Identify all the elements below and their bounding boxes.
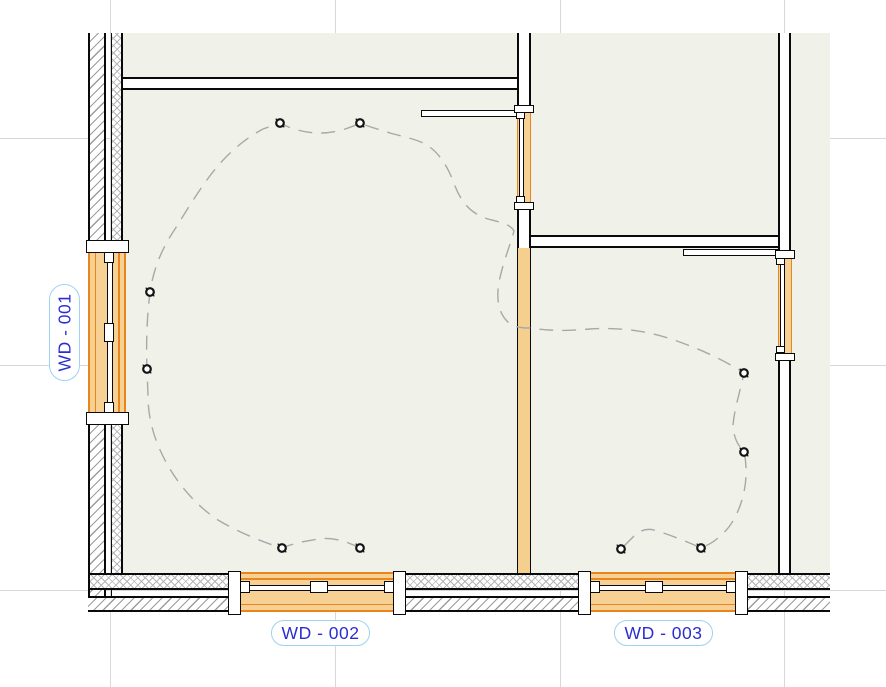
middle-right-partition-wall[interactable] <box>531 235 778 248</box>
window-mullion <box>240 581 250 593</box>
window-glazing <box>780 259 785 353</box>
window-wd-002[interactable] <box>228 571 406 615</box>
window-frame <box>735 571 748 615</box>
window-tag-label: WD - 002 <box>282 623 360 644</box>
window-mullion <box>104 252 114 263</box>
window-tag-wd-001[interactable]: WD - 001 <box>49 284 80 381</box>
window-frame <box>393 571 406 615</box>
window-middle-wall[interactable] <box>514 105 534 210</box>
opening-projection-bar-right <box>683 249 778 256</box>
window-mullion <box>776 258 785 265</box>
window-tag-wd-003[interactable]: WD - 003 <box>614 620 713 646</box>
window-tag-label: WD - 001 <box>54 294 75 372</box>
window-inner-line <box>591 578 735 580</box>
window-inner-line <box>95 253 97 412</box>
window-frame <box>514 202 534 210</box>
window-inner-line <box>118 253 120 412</box>
window-tag-label: WD - 003 <box>625 623 703 644</box>
floor-plan-canvas: WD - 001 WD - 002 WD - 003 <box>0 0 886 687</box>
window-frame <box>775 353 795 362</box>
window-mullion <box>384 581 394 593</box>
opening-projection-bar-top <box>421 110 518 117</box>
window-mullion <box>310 581 328 593</box>
window-glazing <box>591 585 735 591</box>
window-body <box>517 113 531 202</box>
window-body <box>778 259 792 353</box>
window-wd-001[interactable] <box>85 240 129 425</box>
window-frame <box>86 412 129 425</box>
window-inner-line <box>241 604 393 606</box>
window-mullion <box>776 346 785 353</box>
window-mullion <box>516 196 525 203</box>
window-right-wall[interactable] <box>775 250 795 361</box>
window-inner-line <box>591 604 735 606</box>
window-tag-wd-002[interactable]: WD - 002 <box>271 620 370 646</box>
window-inner-line <box>241 578 393 580</box>
window-body <box>591 572 735 612</box>
window-wd-003[interactable] <box>578 571 748 615</box>
middle-partition-wall-lower[interactable] <box>517 248 531 573</box>
window-frame <box>578 571 591 615</box>
window-glazing <box>519 113 524 202</box>
window-frame <box>228 571 241 615</box>
window-mullion <box>590 581 600 593</box>
window-mullion <box>104 402 114 413</box>
window-mullion <box>726 581 736 593</box>
window-mullion <box>516 112 525 119</box>
window-mullion <box>104 323 114 342</box>
upper-left-partition-wall[interactable] <box>123 77 518 90</box>
window-mullion <box>645 581 663 593</box>
